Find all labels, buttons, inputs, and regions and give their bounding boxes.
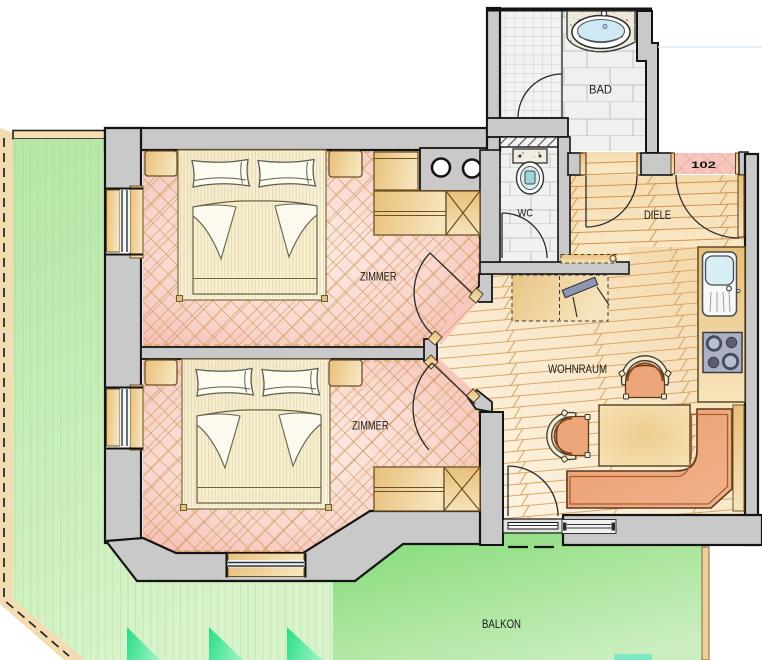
svg-text:WC: WC — [518, 208, 534, 220]
svg-text:BAD: BAD — [589, 83, 612, 97]
svg-text:WOHNRAUM: WOHNRAUM — [548, 362, 607, 376]
svg-text:DIELE: DIELE — [644, 208, 671, 222]
svg-text:ZIMMER: ZIMMER — [360, 270, 397, 284]
svg-text:102: 102 — [691, 160, 716, 171]
svg-text:BALKON: BALKON — [482, 617, 521, 631]
svg-text:ZIMMER: ZIMMER — [352, 419, 389, 433]
